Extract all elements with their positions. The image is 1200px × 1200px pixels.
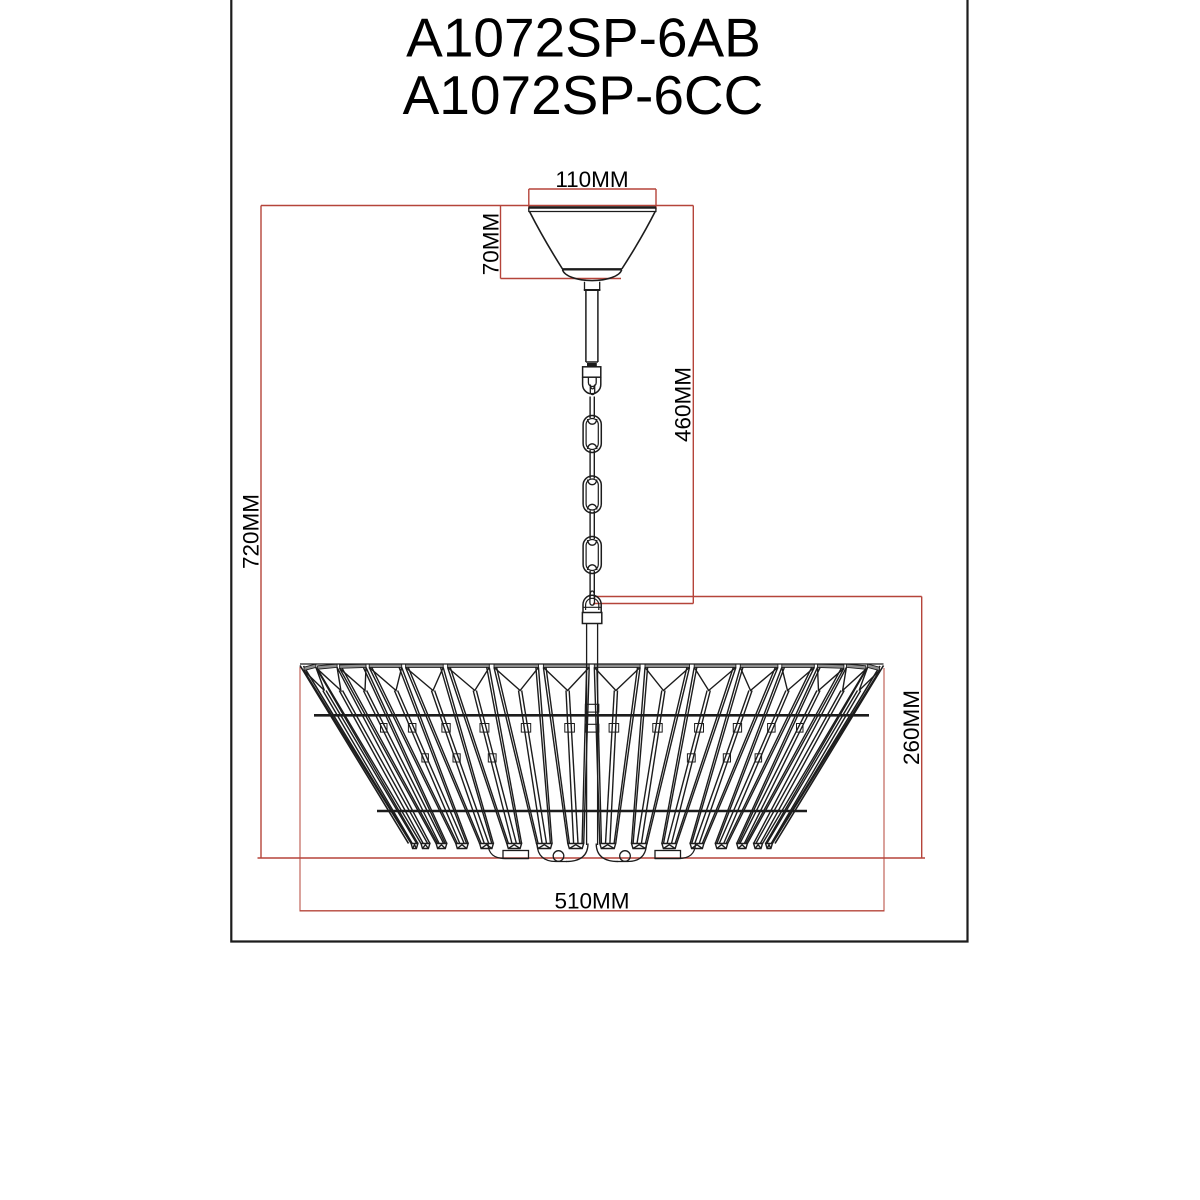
svg-text:70MM: 70MM [479,213,504,276]
svg-text:460MM: 460MM [671,367,696,442]
svg-text:A1072SP-6AB: A1072SP-6AB [406,7,761,69]
svg-text:260MM: 260MM [899,690,924,765]
svg-text:110MM: 110MM [555,167,628,192]
svg-text:510MM: 510MM [554,889,629,914]
svg-text:A1072SP-6CC: A1072SP-6CC [403,64,764,126]
svg-text:720MM: 720MM [239,494,264,569]
